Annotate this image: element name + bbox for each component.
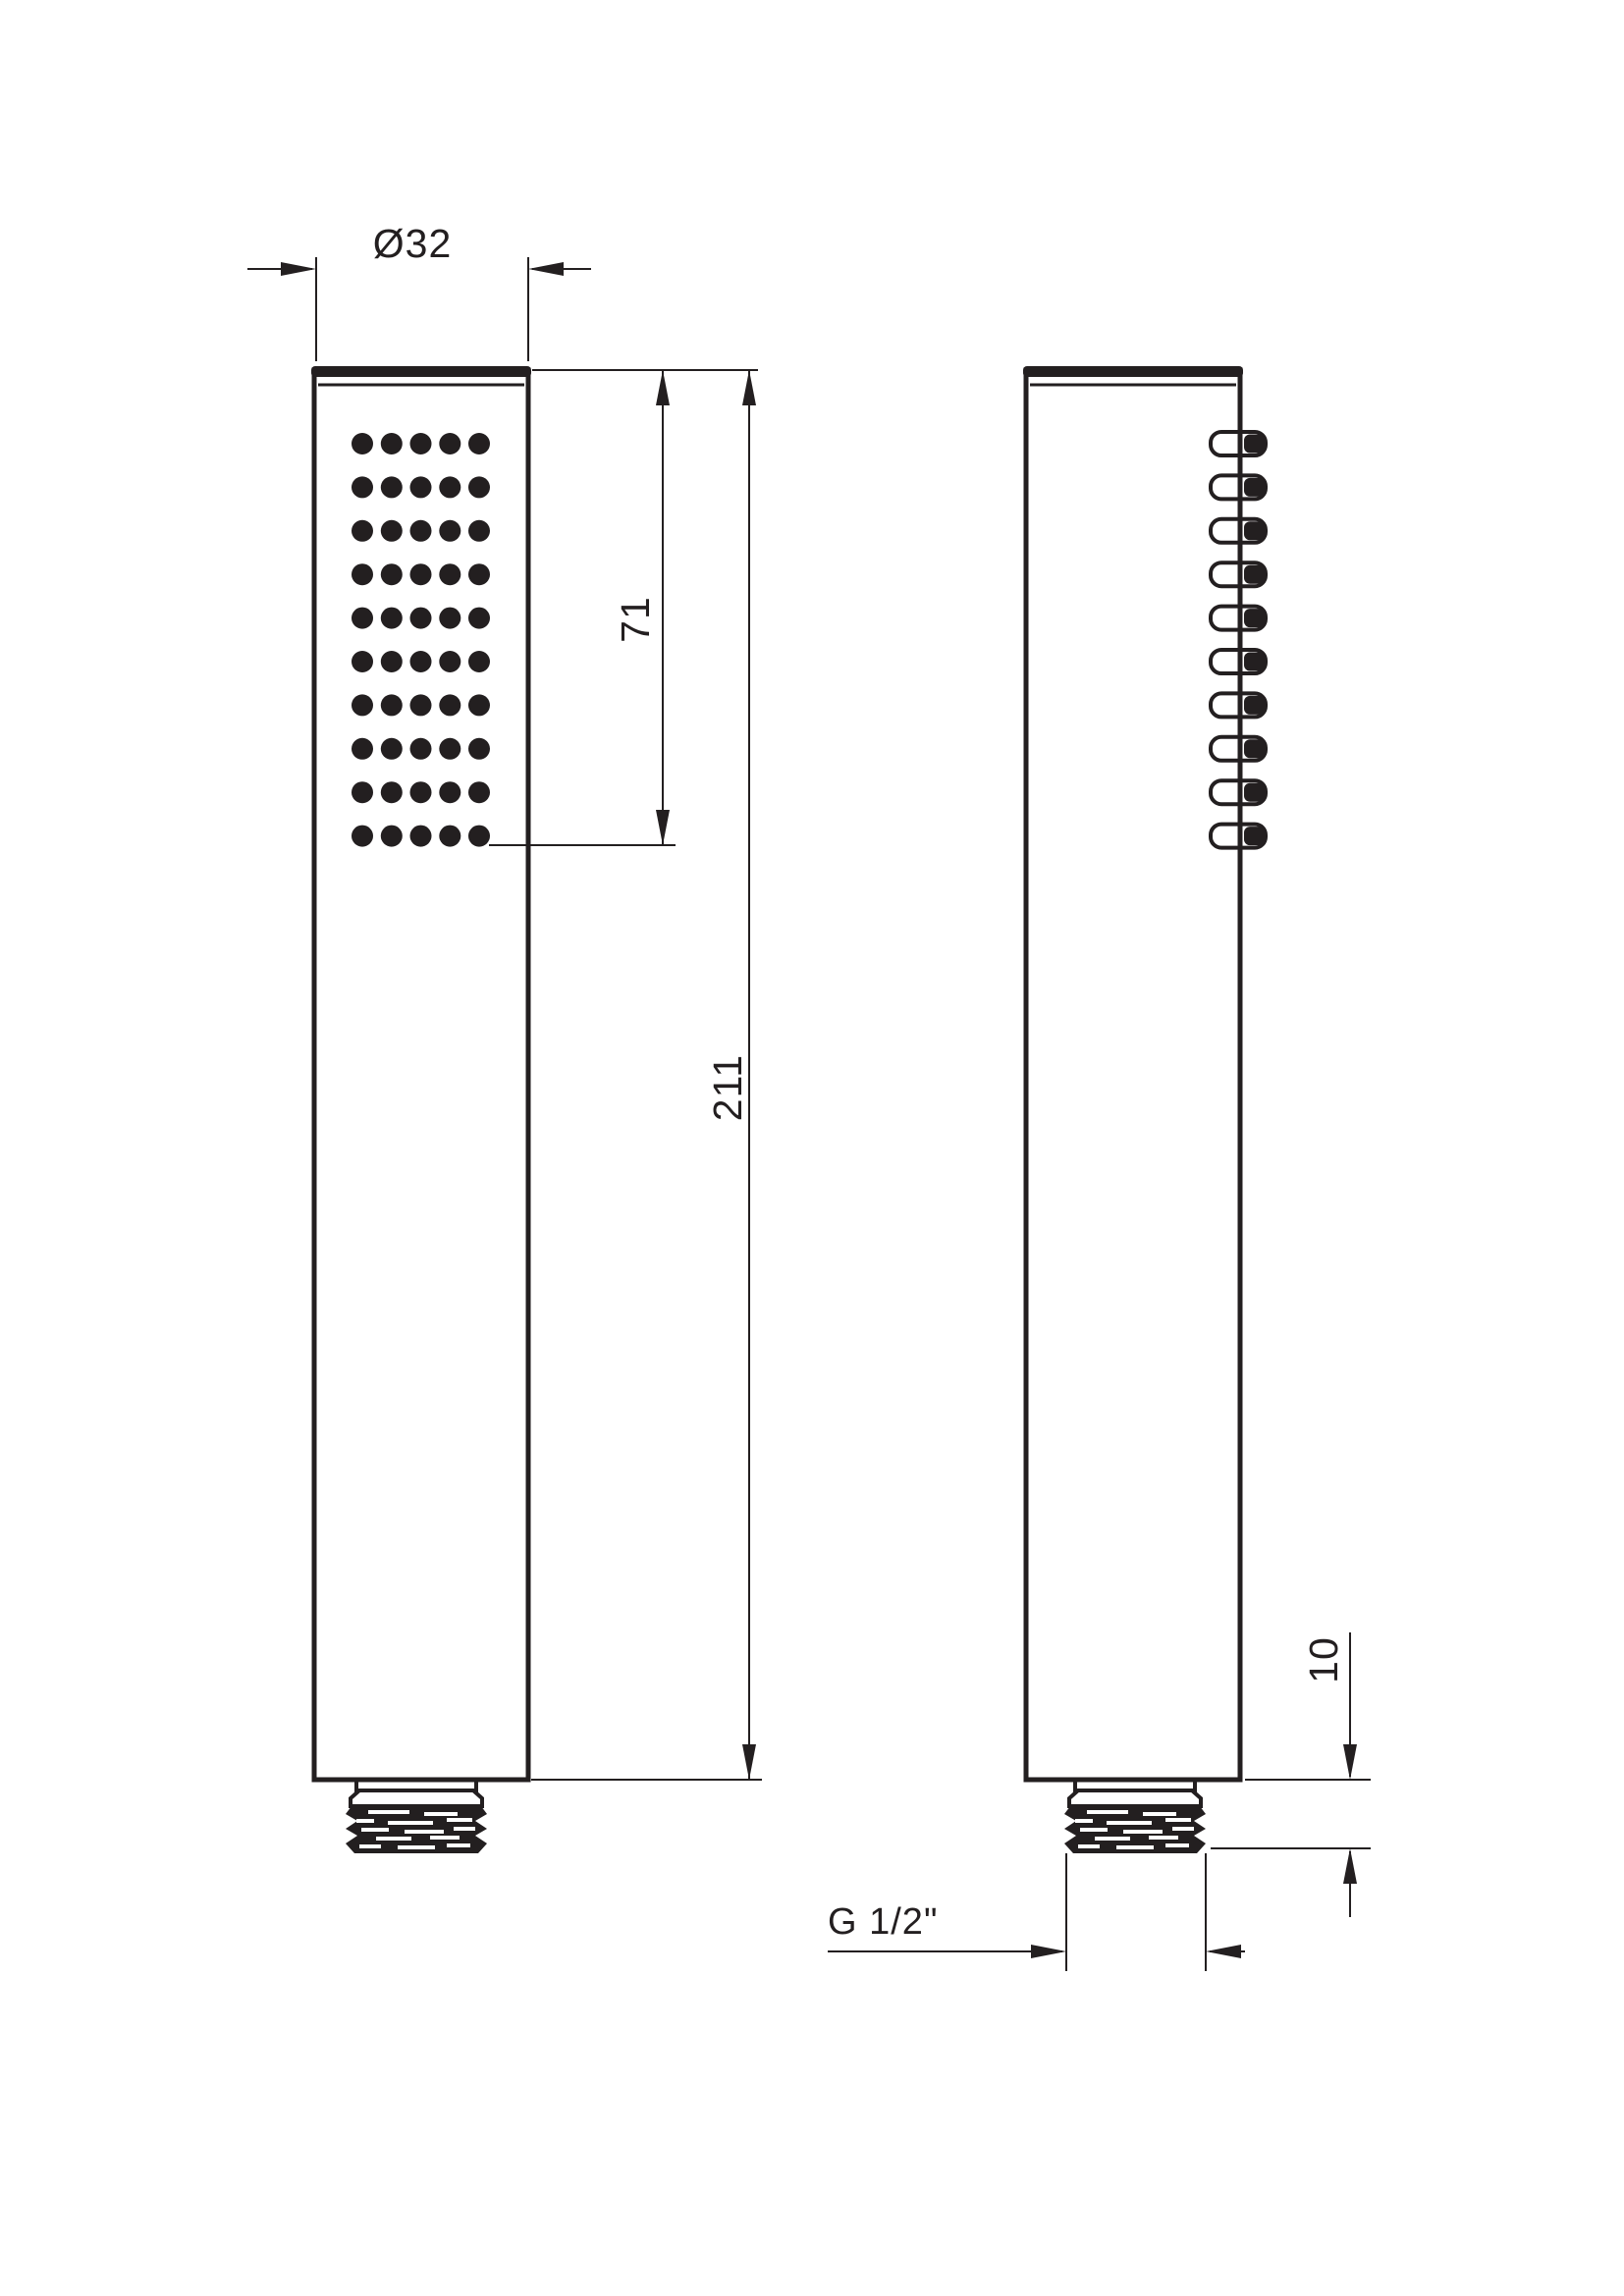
nozzle-cap — [1244, 435, 1265, 454]
spray-dot — [381, 781, 403, 803]
nozzle-cap — [1244, 696, 1265, 715]
spray-dot — [439, 433, 460, 454]
arrow-right-icon — [281, 262, 316, 276]
spray-dot — [468, 476, 490, 498]
nozzle-cap — [1244, 609, 1265, 627]
arrow-left-icon — [1206, 1945, 1241, 1958]
technical-drawing: Ø32 71 211 10 G 1/2" — [0, 0, 1624, 2296]
spray-dot — [439, 520, 460, 542]
front-top-cap — [311, 366, 531, 377]
spray-dot — [381, 433, 403, 454]
spray-dot — [352, 781, 373, 803]
spray-dot — [352, 520, 373, 542]
dim-diameter-label: Ø32 — [373, 221, 453, 266]
dim-total-length-label: 211 — [705, 1054, 750, 1121]
spray-dot — [381, 476, 403, 498]
spray-dot — [410, 608, 432, 629]
dim-spray-length-label: 71 — [613, 596, 658, 643]
spray-dot — [381, 694, 403, 716]
spray-dot — [468, 433, 490, 454]
spray-dot — [468, 738, 490, 760]
front-thread-connector — [346, 1781, 487, 1853]
arrow-down-icon — [656, 810, 670, 845]
spray-dot — [352, 433, 373, 454]
spray-dot — [381, 651, 403, 672]
spray-dot — [381, 520, 403, 542]
spray-dot — [381, 826, 403, 847]
spray-dot — [352, 826, 373, 847]
spray-dot — [410, 433, 432, 454]
spray-dot — [410, 563, 432, 585]
spray-dot — [439, 563, 460, 585]
spray-dot — [468, 520, 490, 542]
dim-thread-spec-label: G 1/2" — [828, 1901, 938, 1943]
spray-dot — [439, 826, 460, 847]
spray-dot — [381, 738, 403, 760]
spray-dot — [468, 694, 490, 716]
nozzle-cap — [1244, 478, 1265, 497]
spray-dot — [468, 563, 490, 585]
arrow-down-icon — [1343, 1744, 1357, 1780]
side-top-cap — [1023, 366, 1243, 377]
spray-dot — [352, 694, 373, 716]
dim-total-length: 211 — [531, 370, 762, 1780]
nozzle-cap — [1244, 783, 1265, 802]
side-view — [1023, 366, 1266, 1853]
spray-dot — [410, 738, 432, 760]
spray-dot — [410, 781, 432, 803]
arrow-up-icon — [656, 370, 670, 405]
spray-dot — [468, 826, 490, 847]
spray-dot — [410, 694, 432, 716]
spray-dot — [352, 563, 373, 585]
spray-dot — [468, 651, 490, 672]
dim-thread-length-label: 10 — [1301, 1636, 1346, 1683]
spray-dot — [439, 651, 460, 672]
spray-dot — [410, 520, 432, 542]
arrow-down-icon — [742, 1744, 756, 1780]
spray-dot — [468, 781, 490, 803]
nozzle-cap — [1244, 739, 1265, 758]
spray-dot — [352, 738, 373, 760]
front-view — [311, 366, 531, 1853]
nozzle-cap — [1244, 521, 1265, 540]
drawing-page: Ø32 71 211 10 G 1/2" — [0, 0, 1624, 2296]
arrow-right-icon — [1031, 1945, 1066, 1958]
spray-dot — [439, 476, 460, 498]
spray-dot — [352, 476, 373, 498]
spray-dot — [439, 738, 460, 760]
spray-dot — [352, 651, 373, 672]
arrow-up-icon — [742, 370, 756, 405]
spray-dot — [439, 781, 460, 803]
spray-dot — [381, 563, 403, 585]
spray-dot — [410, 826, 432, 847]
nozzle-cap — [1244, 565, 1265, 584]
spray-dot — [381, 608, 403, 629]
nozzle-cap — [1244, 653, 1265, 671]
spray-dot — [468, 608, 490, 629]
arrow-left-icon — [528, 262, 564, 276]
spray-dot — [439, 694, 460, 716]
dim-thread-spec: G 1/2" — [828, 1853, 1245, 1971]
arrow-up-icon — [1343, 1848, 1357, 1884]
spray-dot — [410, 651, 432, 672]
side-thread-connector — [1064, 1781, 1206, 1853]
dim-diameter: Ø32 — [247, 221, 591, 361]
nozzle-cap — [1244, 827, 1265, 845]
spray-dot — [439, 608, 460, 629]
spray-dot — [352, 608, 373, 629]
spray-dot — [410, 476, 432, 498]
side-body-fill — [1026, 370, 1240, 1780]
